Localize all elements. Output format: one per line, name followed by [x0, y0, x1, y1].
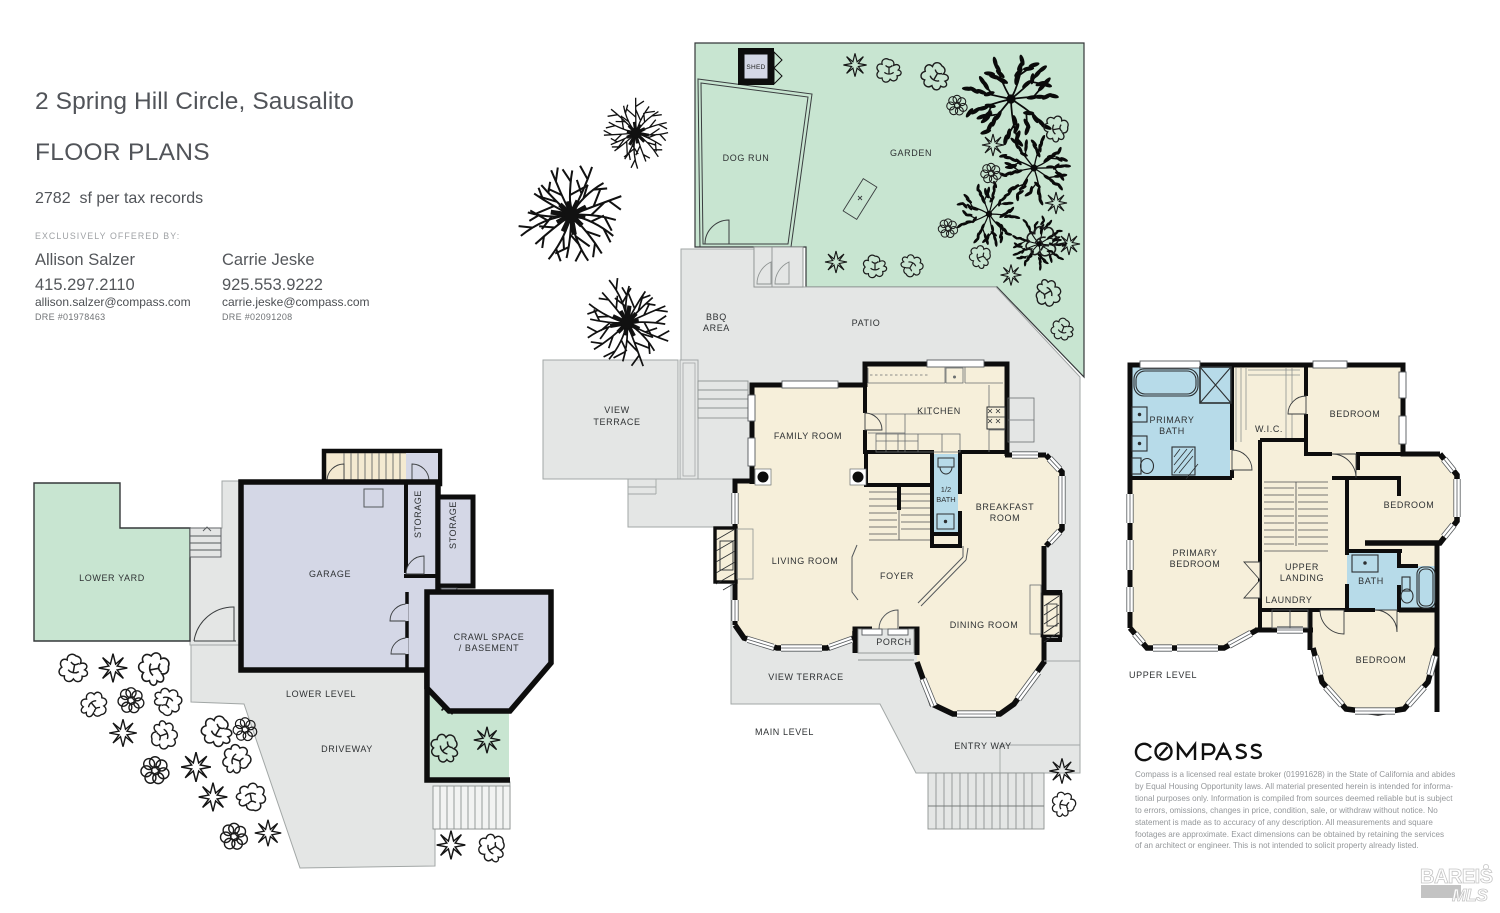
svg-text:DINING ROOM: DINING ROOM	[950, 620, 1019, 630]
svg-text:PORCH: PORCH	[876, 637, 912, 647]
svg-text:1/2: 1/2	[941, 485, 951, 494]
svg-text:LANDING: LANDING	[1280, 573, 1324, 583]
svg-text:PRIMARY: PRIMARY	[1149, 415, 1194, 425]
svg-text:UPPER LEVEL: UPPER LEVEL	[1129, 670, 1197, 680]
svg-text:ENTRY WAY: ENTRY WAY	[954, 741, 1012, 751]
svg-text:CRAWL SPACE: CRAWL SPACE	[454, 632, 525, 642]
svg-text:VIEW: VIEW	[604, 405, 629, 415]
svg-text:FOYER: FOYER	[880, 571, 914, 581]
svg-text:BATH: BATH	[936, 495, 955, 504]
svg-text:VIEW TERRACE: VIEW TERRACE	[768, 672, 844, 682]
svg-text:DOG RUN: DOG RUN	[723, 153, 770, 163]
svg-text:LOWER YARD: LOWER YARD	[79, 573, 145, 583]
svg-text:W.I.C.: W.I.C.	[1255, 424, 1283, 434]
svg-text:UPPER: UPPER	[1285, 562, 1319, 572]
svg-text:TERRACE: TERRACE	[593, 417, 640, 427]
svg-text:ROOM: ROOM	[990, 513, 1020, 523]
svg-text:STORAGE: STORAGE	[448, 501, 458, 549]
svg-text:/ BASEMENT: / BASEMENT	[459, 643, 520, 653]
svg-text:GARAGE: GARAGE	[309, 569, 351, 579]
svg-text:LIVING ROOM: LIVING ROOM	[772, 556, 839, 566]
svg-text:BBQ: BBQ	[706, 312, 727, 322]
svg-text:BEDROOM: BEDROOM	[1384, 500, 1435, 510]
svg-text:BEDROOM: BEDROOM	[1356, 655, 1407, 665]
svg-text:PRIMARY: PRIMARY	[1172, 548, 1217, 558]
svg-text:BREAKFAST: BREAKFAST	[976, 502, 1034, 512]
svg-text:LOWER LEVEL: LOWER LEVEL	[286, 689, 356, 699]
svg-text:PATIO: PATIO	[852, 318, 881, 328]
svg-text:BATH: BATH	[1159, 426, 1185, 436]
svg-text:BEDROOM: BEDROOM	[1330, 409, 1381, 419]
svg-text:MAIN LEVEL: MAIN LEVEL	[755, 727, 814, 737]
svg-text:BATH: BATH	[1358, 576, 1384, 586]
svg-text:GARDEN: GARDEN	[890, 148, 932, 158]
svg-text:BEDROOM: BEDROOM	[1170, 559, 1221, 569]
svg-text:LAUNDRY: LAUNDRY	[1265, 595, 1312, 605]
svg-text:KITCHEN: KITCHEN	[917, 406, 961, 416]
svg-text:AREA: AREA	[703, 323, 730, 333]
svg-text:SHED: SHED	[746, 64, 765, 71]
svg-text:FAMILY ROOM: FAMILY ROOM	[774, 431, 842, 441]
svg-text:STORAGE: STORAGE	[413, 490, 423, 538]
svg-text:DRIVEWAY: DRIVEWAY	[321, 744, 373, 754]
svg-text:MLS: MLS	[1452, 885, 1488, 905]
